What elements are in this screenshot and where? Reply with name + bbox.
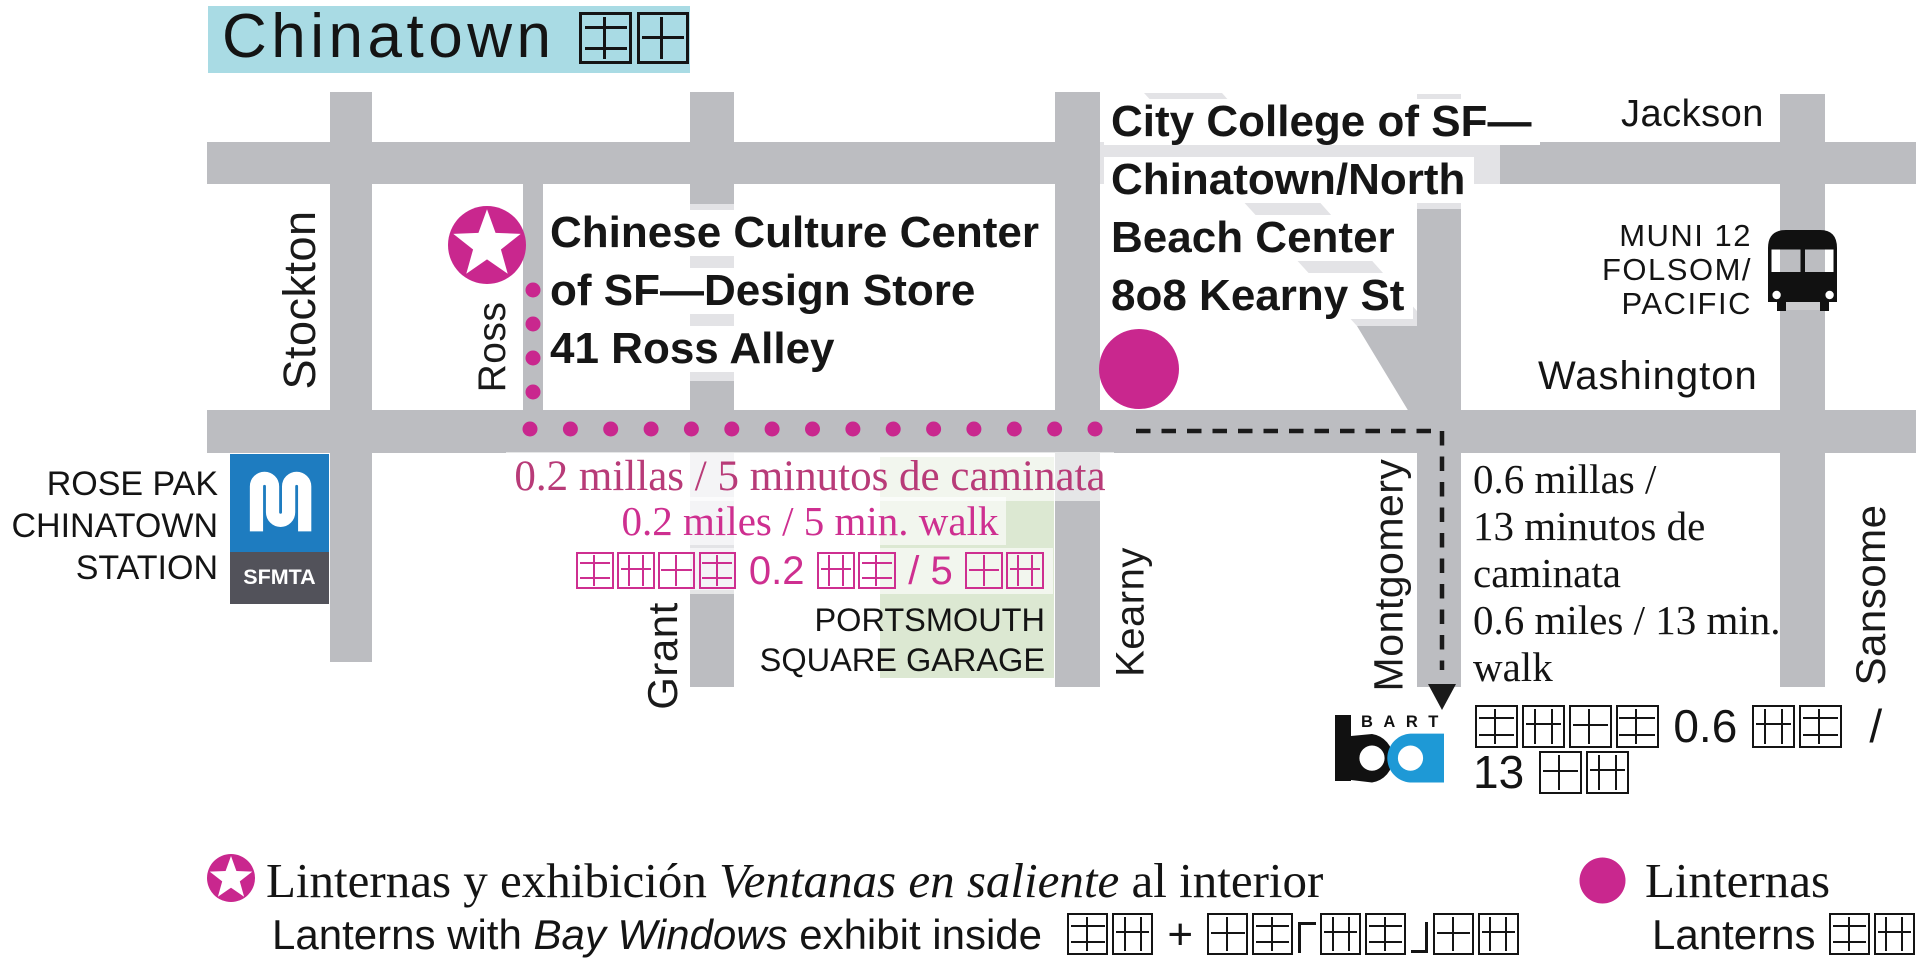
svg-text:BART: BART xyxy=(1361,713,1447,731)
